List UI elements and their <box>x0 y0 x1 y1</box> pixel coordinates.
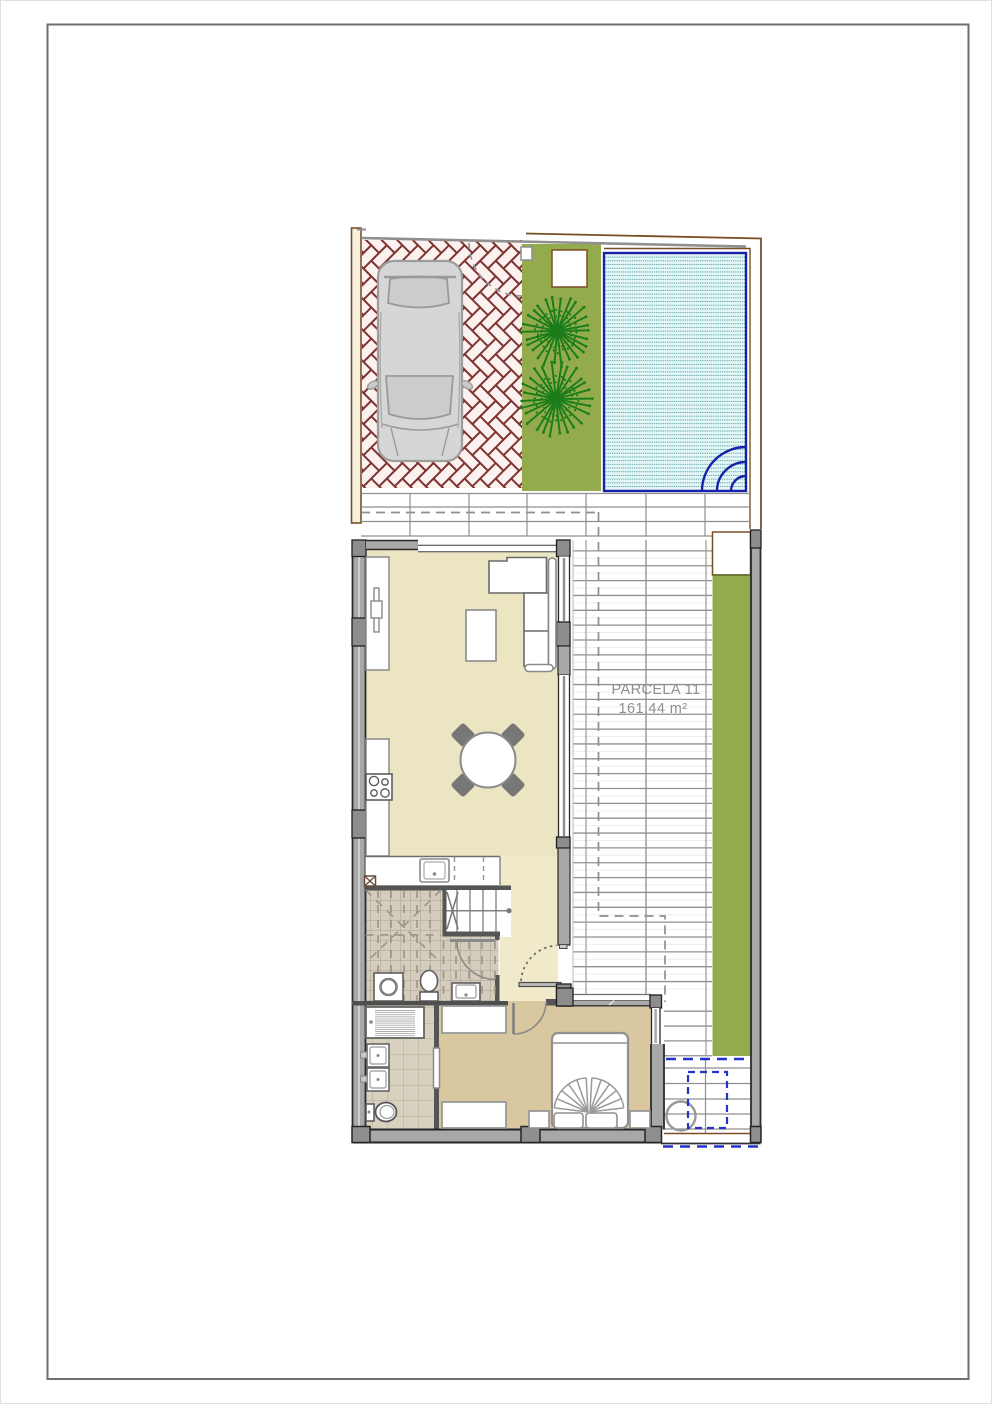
svg-text:PARCELA 11: PARCELA 11 <box>612 682 701 698</box>
svg-text:161.44 m²: 161.44 m² <box>619 701 688 717</box>
